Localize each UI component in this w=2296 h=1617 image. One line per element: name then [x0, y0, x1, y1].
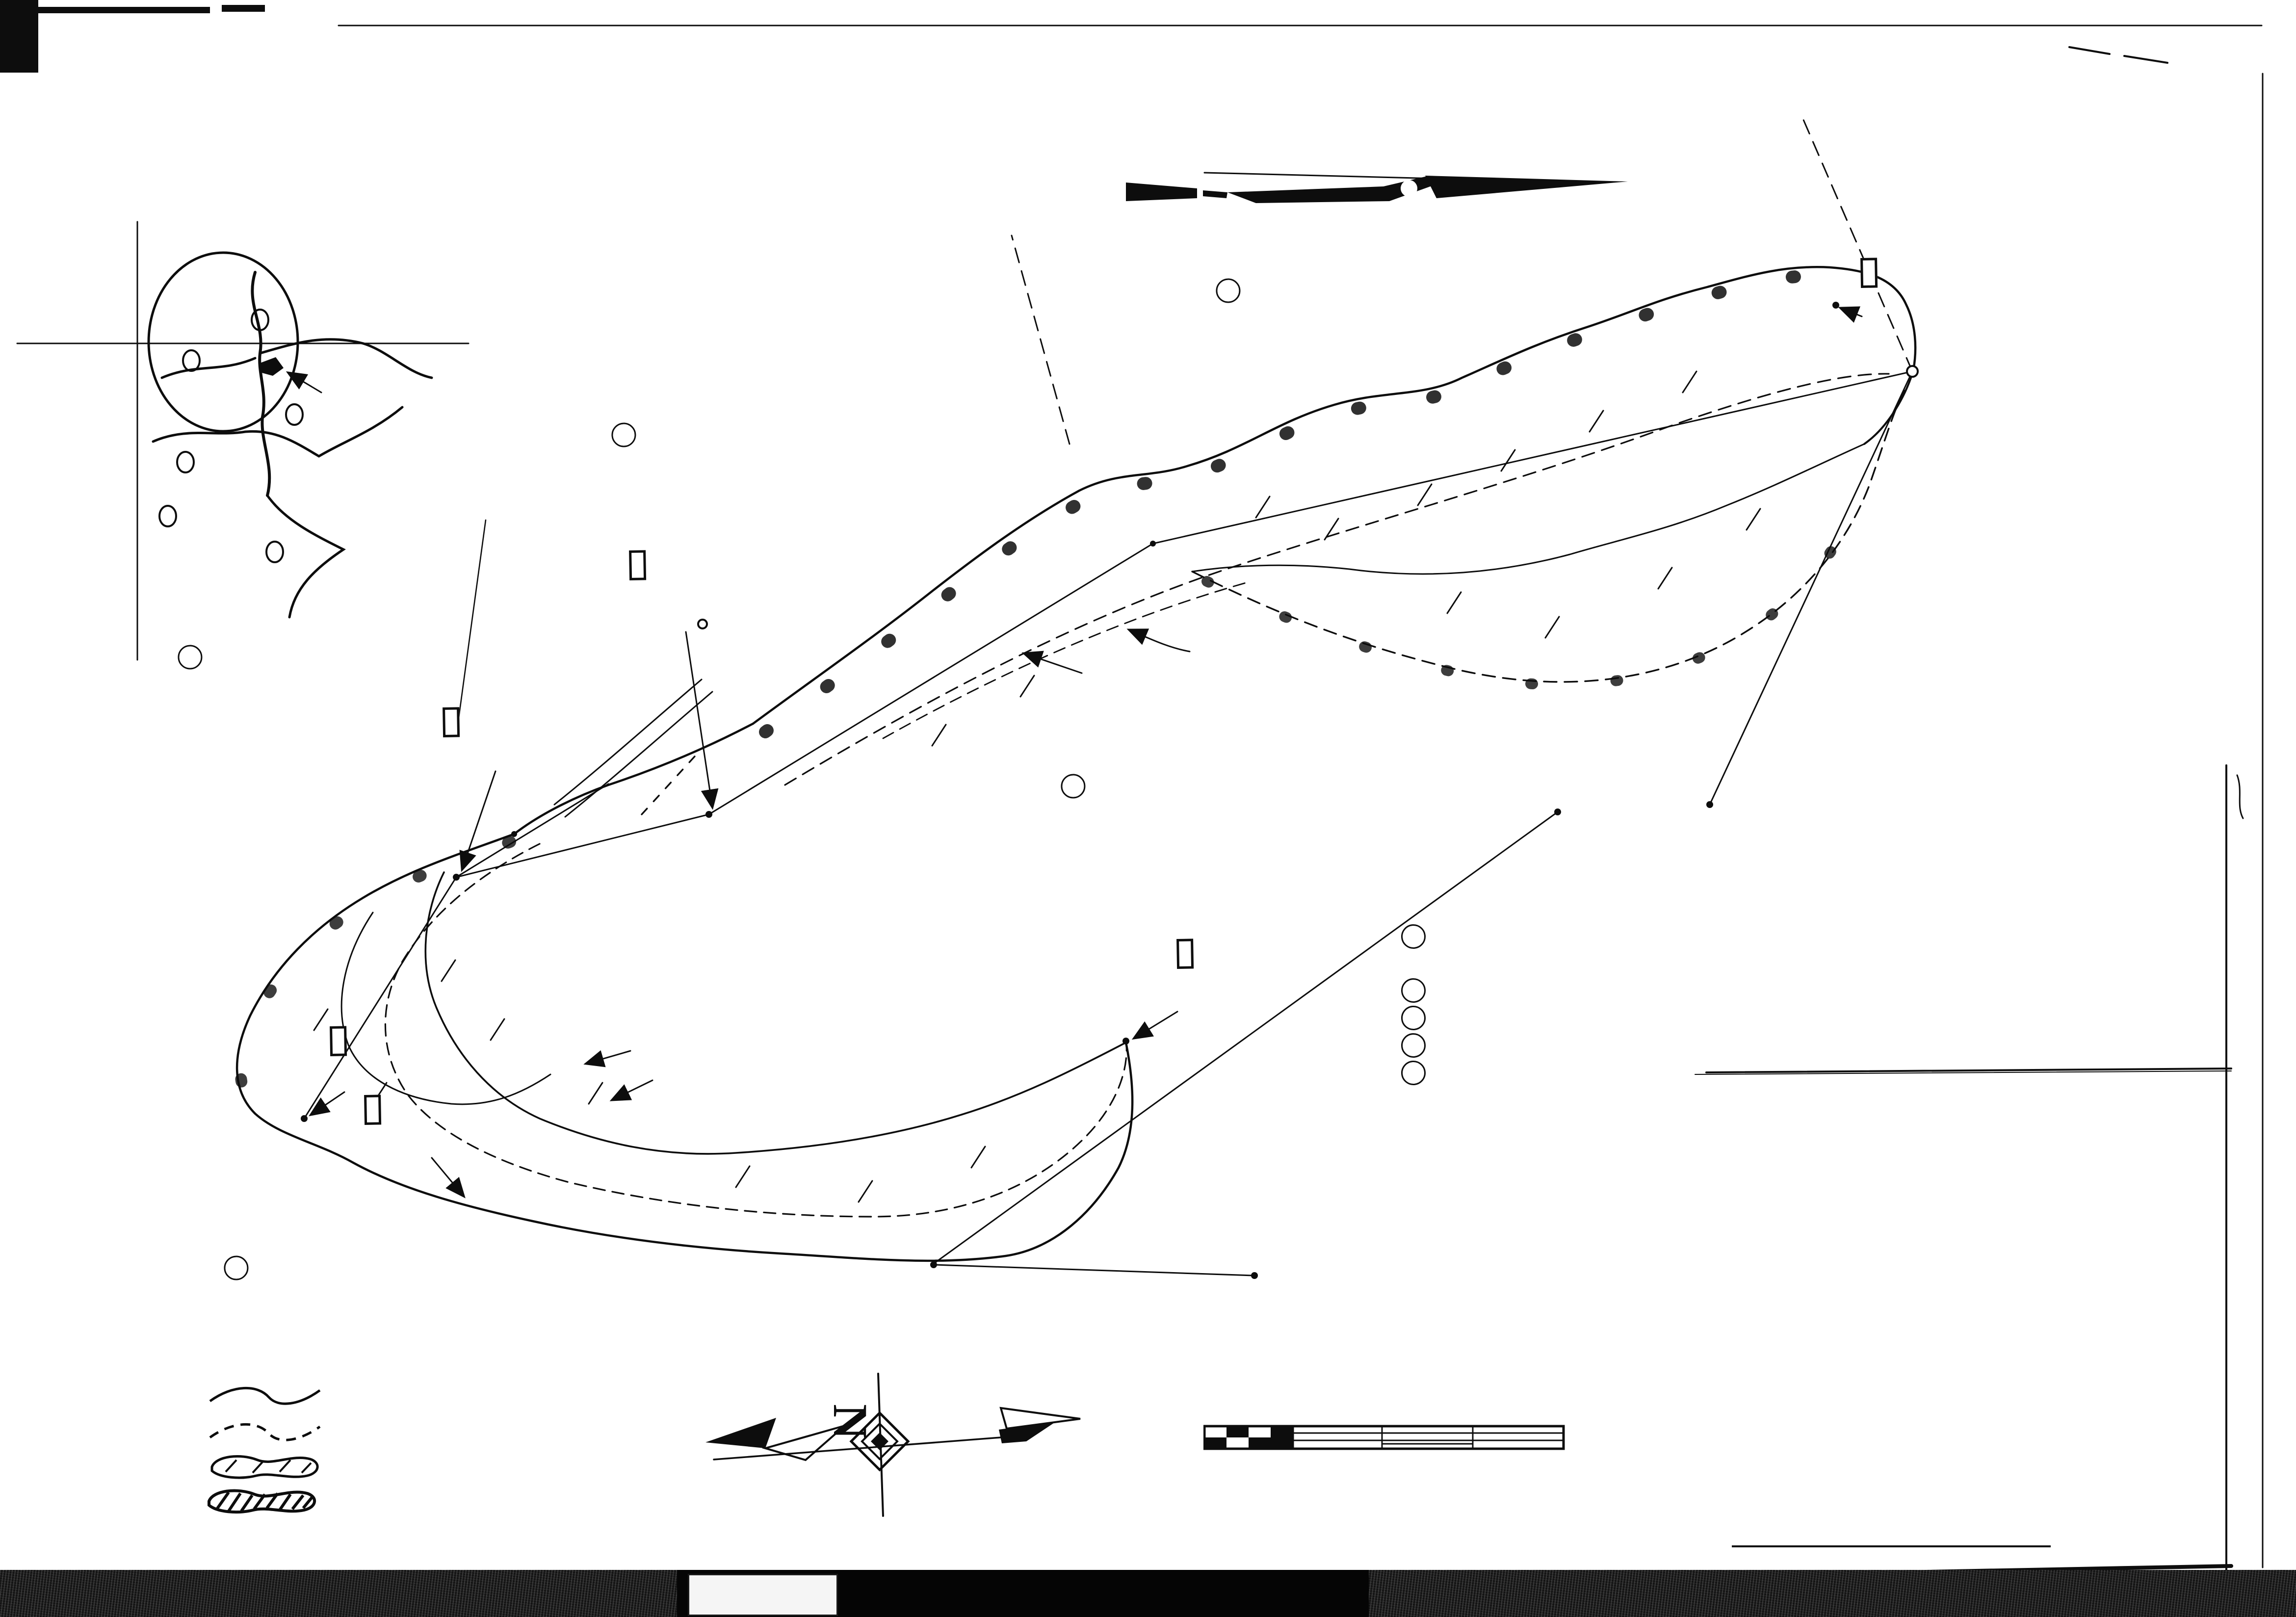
areas-table — [1383, 799, 2267, 1172]
table-row — [1383, 1009, 2267, 1033]
legend-symbol-reclaimed — [203, 1483, 321, 1520]
magnetic-north-arrow — [1126, 173, 1628, 203]
disturbed-outline-upper — [753, 267, 1915, 724]
marker-title — [1860, 256, 1877, 256]
table-row — [1383, 1036, 2267, 1061]
marker-title — [629, 548, 646, 548]
legend-symbol-disturbed — [206, 1378, 324, 1412]
lineal-feet-row — [1383, 1151, 2267, 1175]
strip-noise-left — [0, 1570, 677, 1617]
table-row — [1383, 1064, 2267, 1088]
disturbed-outline-lower — [237, 834, 1132, 1261]
tract-letter-B — [224, 1255, 249, 1280]
tract-label-A — [1061, 774, 1098, 799]
tract-letter-E — [1216, 278, 1241, 303]
corner-blob — [0, 0, 38, 73]
scale-bar-graphic — [1203, 1424, 1576, 1452]
affected-outline-right-lobe — [1192, 390, 1905, 682]
marker-red-oak — [330, 1024, 347, 1056]
marker-permanent — [629, 548, 646, 580]
film-edge-strip — [0, 1570, 2296, 1617]
tract-letter-A — [1061, 774, 1086, 799]
tract-label-B — [224, 1255, 261, 1280]
legend-symbol-regraded — [206, 1448, 324, 1486]
marker-title — [1176, 937, 1193, 937]
row-letter — [1400, 1032, 1426, 1058]
table-totals-row — [1383, 1093, 2267, 1118]
location-inset — [17, 222, 469, 660]
row-letter — [1400, 1060, 1426, 1086]
marker-line — [338, 1034, 339, 1048]
marker-line — [451, 715, 451, 730]
marker-title — [364, 1093, 381, 1093]
strip-noise-right — [1369, 1570, 2296, 1617]
scale-bar — [1209, 1396, 1582, 1479]
svg-text:N: N — [823, 1404, 878, 1439]
table-row — [1383, 927, 2267, 952]
marker-line — [637, 558, 638, 573]
survey-map-sheet: N — [0, 0, 2296, 1617]
tract-letter-D — [611, 422, 636, 447]
tract-label-D — [611, 422, 649, 447]
row-letter — [1400, 1005, 1426, 1031]
marker-title — [330, 1024, 346, 1024]
row-letter — [1400, 977, 1426, 1003]
legend-symbol-affected — [206, 1414, 324, 1448]
seam-of-coal-row — [1383, 1119, 2267, 1143]
col-header-reclaimed — [2115, 857, 2228, 874]
compass-rose: N — [705, 1374, 1080, 1516]
col-header-total-production — [1811, 839, 1924, 873]
marker-iron-pipe-w — [443, 705, 460, 737]
tract-label-E — [1216, 278, 1253, 303]
tract-label-C — [178, 645, 215, 670]
marker-line — [1869, 265, 1869, 280]
marker-title — [443, 705, 459, 705]
marker-iron-pipe-ne — [1860, 256, 1878, 288]
signature-rule — [1732, 1545, 2051, 1547]
col-header-total-disturbed — [1706, 839, 1819, 873]
film-code-plate — [688, 1574, 838, 1616]
table-row — [1383, 981, 2267, 1006]
tract-letter-C — [178, 645, 203, 670]
marker-iron-pipe-sw — [364, 1093, 381, 1125]
row-letter — [1400, 923, 1426, 949]
marker-line — [372, 1102, 373, 1117]
property-line-n1050 — [1710, 371, 1912, 805]
marker-line — [1185, 946, 1185, 961]
marker-iron-pin — [1176, 937, 1194, 969]
col-header-affected — [1922, 857, 2035, 874]
